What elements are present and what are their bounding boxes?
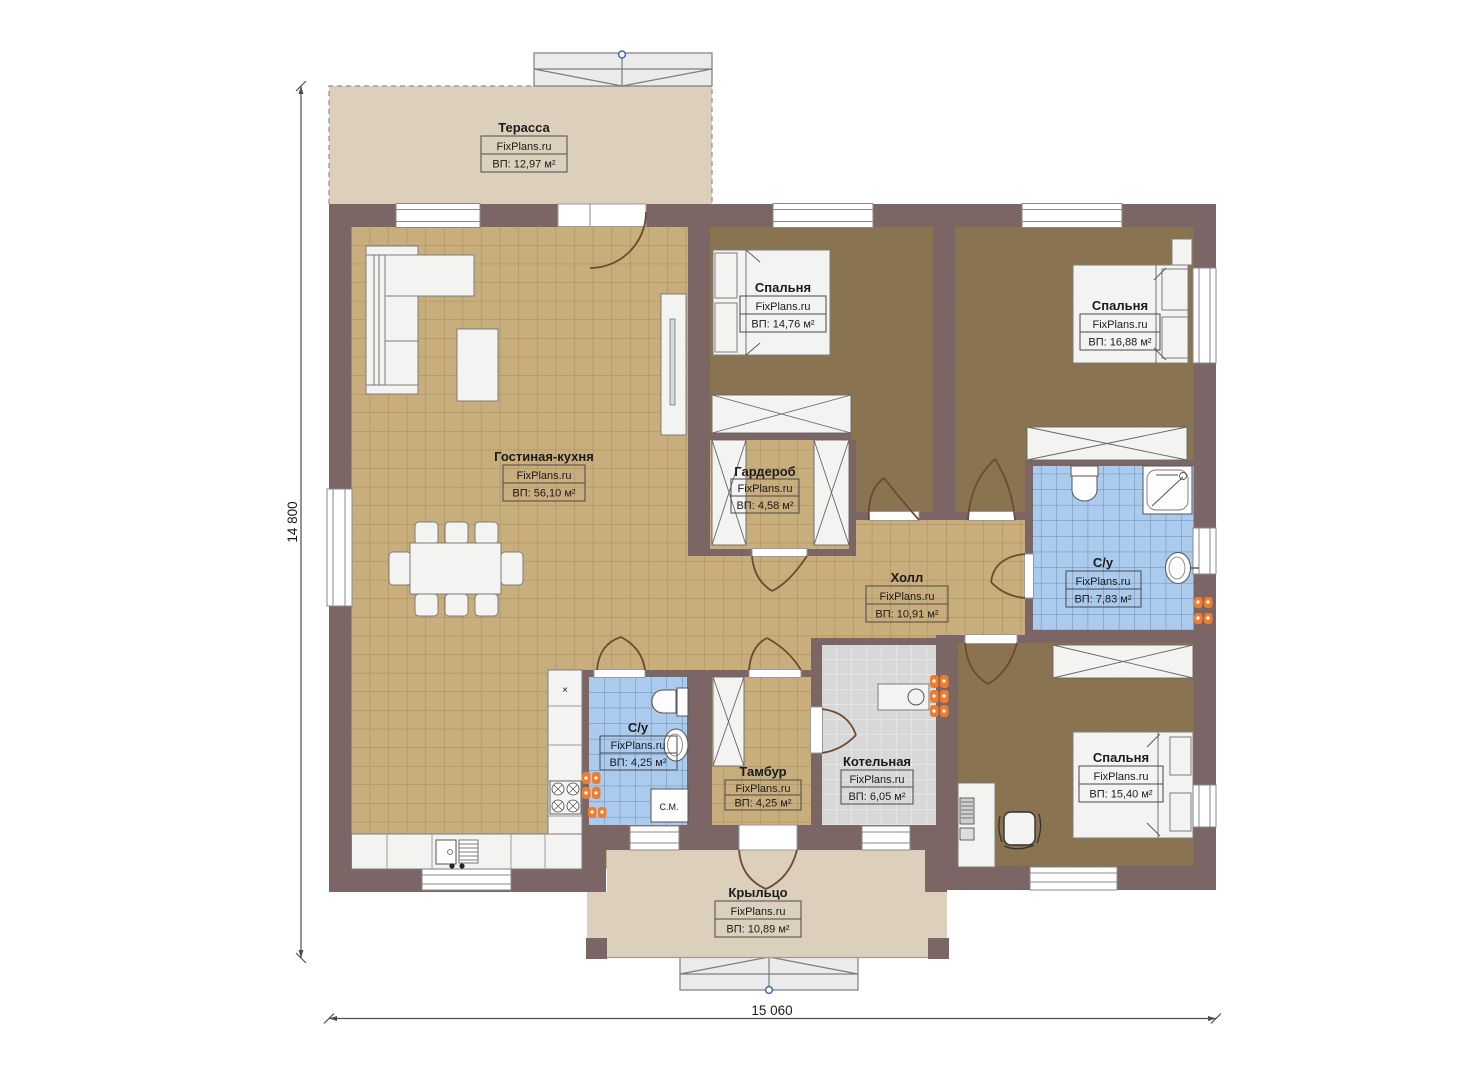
svg-text:ВП: 56,10 м²: ВП: 56,10 м² — [512, 488, 576, 500]
svg-text:ВП: 14,76 м²: ВП: 14,76 м² — [751, 319, 815, 331]
svg-text:C/у: C/у — [628, 720, 649, 735]
svg-text:FixPlans.ru: FixPlans.ru — [516, 470, 571, 482]
svg-text:FixPlans.ru: FixPlans.ru — [755, 301, 810, 313]
svg-text:FixPlans.ru: FixPlans.ru — [730, 906, 785, 918]
svg-text:Гостиная-кухня: Гостиная-кухня — [494, 449, 594, 464]
svg-text:Холл: Холл — [891, 570, 924, 585]
svg-text:FixPlans.ru: FixPlans.ru — [879, 591, 934, 603]
svg-text:FixPlans.ru: FixPlans.ru — [610, 740, 665, 752]
svg-text:FixPlans.ru: FixPlans.ru — [1092, 319, 1147, 331]
svg-text:ВП: 7,83 м²: ВП: 7,83 м² — [1074, 594, 1131, 606]
svg-text:Терасса: Терасса — [498, 120, 550, 135]
svg-text:FixPlans.ru: FixPlans.ru — [1075, 576, 1130, 588]
svg-text:Котельная: Котельная — [843, 754, 911, 769]
svg-text:15 060: 15 060 — [751, 1003, 792, 1018]
svg-text:FixPlans.ru: FixPlans.ru — [737, 483, 792, 495]
svg-text:ВП: 4,25 м²: ВП: 4,25 м² — [609, 757, 666, 769]
svg-text:ВП: 10,91 м²: ВП: 10,91 м² — [875, 609, 939, 621]
svg-text:Спальня: Спальня — [755, 280, 811, 295]
svg-text:Гардероб: Гардероб — [734, 464, 795, 479]
svg-text:Спальня: Спальня — [1093, 750, 1149, 765]
svg-text:Крыльцо: Крыльцо — [728, 885, 787, 900]
svg-text:Спальня: Спальня — [1092, 298, 1148, 313]
svg-text:FixPlans.ru: FixPlans.ru — [735, 783, 790, 795]
svg-text:14 800: 14 800 — [285, 501, 300, 542]
svg-text:FixPlans.ru: FixPlans.ru — [1093, 771, 1148, 783]
svg-text:×: × — [562, 685, 568, 696]
svg-text:ВП: 15,40 м²: ВП: 15,40 м² — [1089, 789, 1153, 801]
svg-text:ВП: 10,89 м²: ВП: 10,89 м² — [726, 924, 790, 936]
svg-text:ВП: 16,88 м²: ВП: 16,88 м² — [1088, 337, 1152, 349]
svg-text:ВП: 4,25 м²: ВП: 4,25 м² — [734, 798, 791, 810]
svg-text:FixPlans.ru: FixPlans.ru — [849, 774, 904, 786]
svg-text:FixPlans.ru: FixPlans.ru — [496, 141, 551, 153]
svg-text:Тамбур: Тамбур — [739, 764, 786, 779]
svg-text:C/у: C/у — [1093, 555, 1114, 570]
svg-text:ВП: 4,58 м²: ВП: 4,58 м² — [736, 500, 793, 512]
svg-text:ВП: 12,97 м²: ВП: 12,97 м² — [492, 159, 556, 171]
svg-text:ВП: 6,05 м²: ВП: 6,05 м² — [848, 791, 905, 803]
svg-text:С.М.: С.М. — [660, 802, 679, 812]
